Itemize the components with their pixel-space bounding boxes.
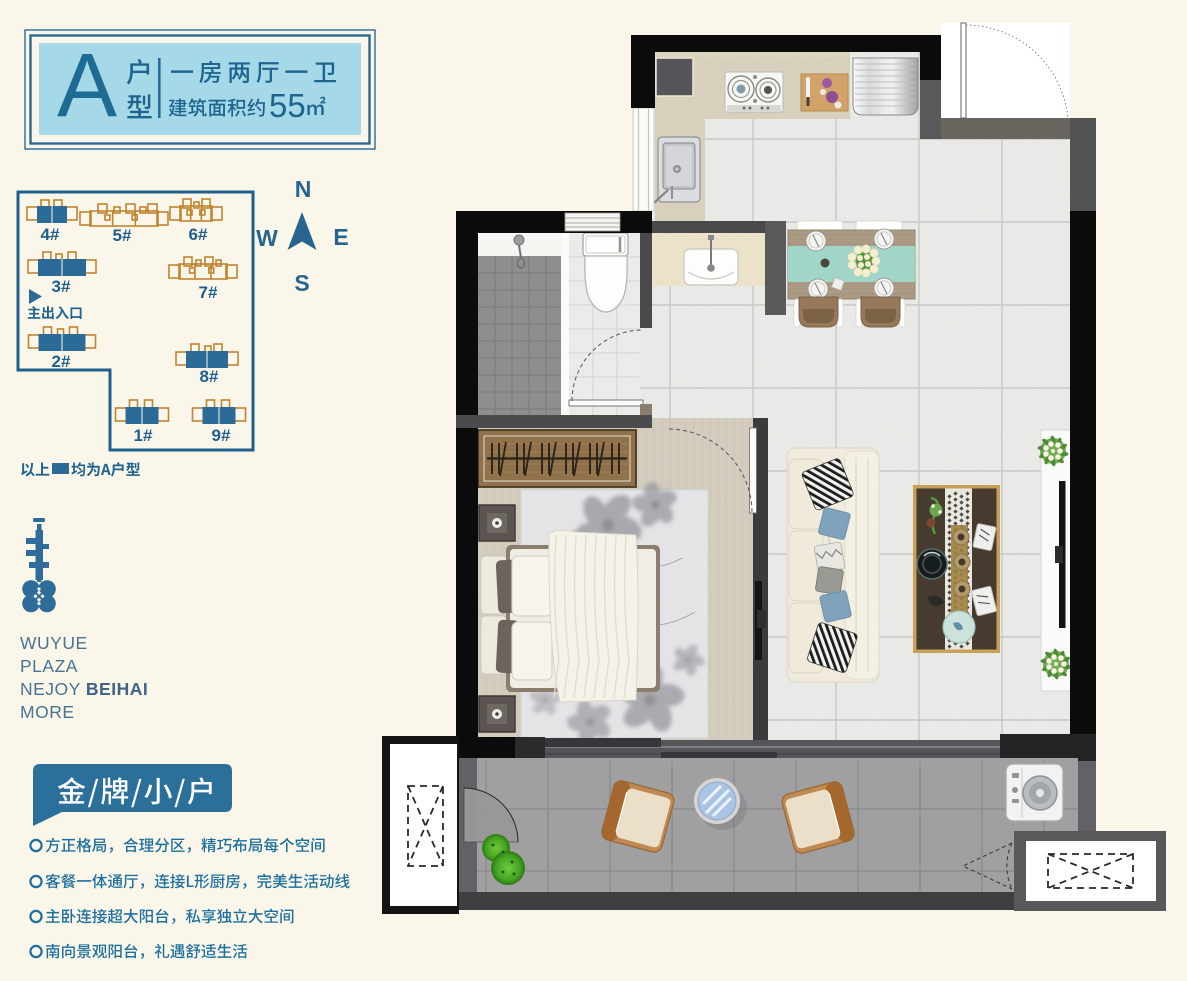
svg-text:PLAZA: PLAZA: [20, 656, 78, 676]
svg-text:NEJOY BEIHAI: NEJOY BEIHAI: [20, 679, 148, 699]
svg-text:55: 55: [269, 87, 306, 124]
svg-text:7#: 7#: [199, 283, 218, 302]
svg-text:N: N: [295, 176, 312, 202]
svg-text:A: A: [57, 36, 117, 136]
svg-text:MORE: MORE: [20, 702, 75, 722]
svg-text:9#: 9#: [212, 426, 231, 445]
svg-text:1#: 1#: [134, 426, 153, 445]
svg-text:E: E: [333, 224, 348, 250]
svg-text:WUYUE: WUYUE: [20, 633, 88, 653]
svg-text:S: S: [294, 270, 309, 296]
svg-text:2#: 2#: [52, 352, 71, 371]
svg-text:4#: 4#: [41, 225, 60, 244]
svg-text:6#: 6#: [189, 225, 208, 244]
svg-text:3#: 3#: [52, 277, 71, 296]
svg-text:W: W: [256, 225, 278, 251]
svg-text:5#: 5#: [113, 226, 132, 245]
svg-text:8#: 8#: [200, 367, 219, 386]
